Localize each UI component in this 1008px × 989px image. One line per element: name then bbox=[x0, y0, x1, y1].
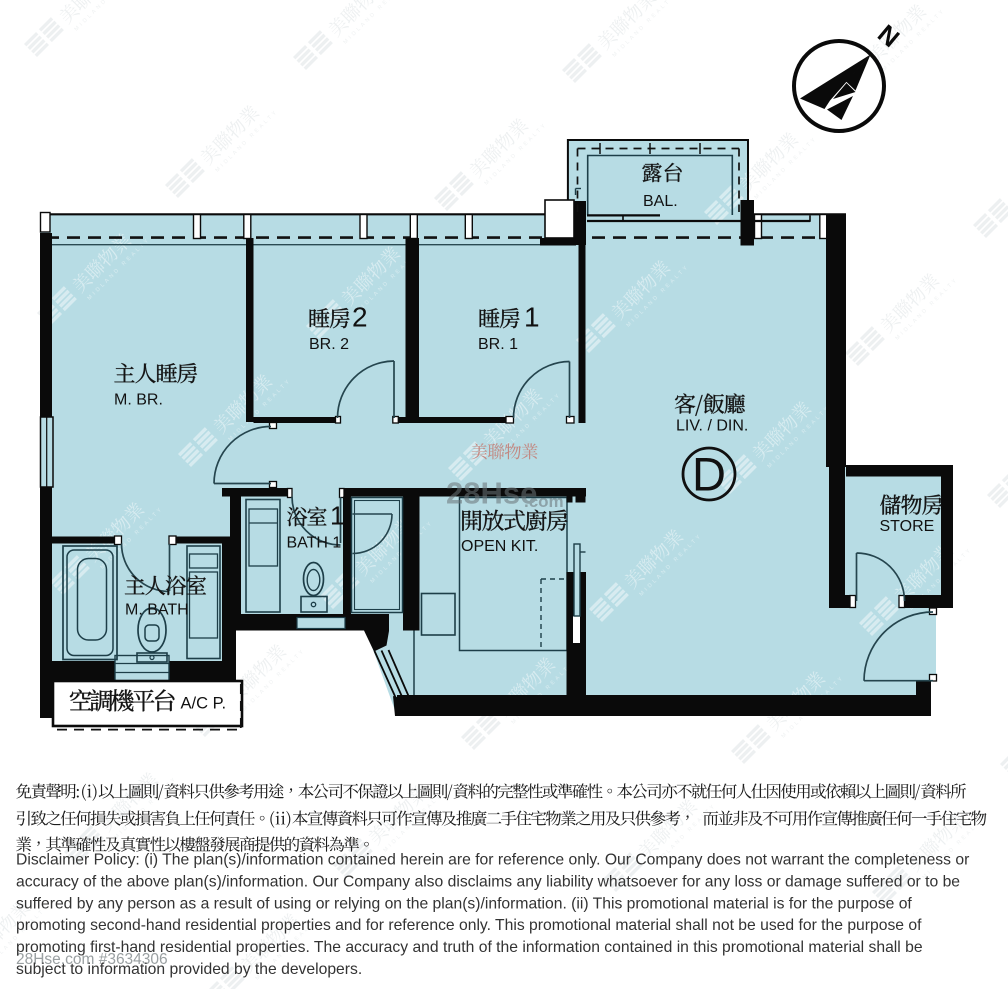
svg-text:M. BATH: M. BATH bbox=[125, 602, 189, 619]
svg-text:1: 1 bbox=[524, 302, 540, 333]
svg-text:BAL.: BAL. bbox=[643, 193, 678, 210]
svg-text:BATH 1: BATH 1 bbox=[287, 535, 342, 552]
svg-text:2: 2 bbox=[352, 302, 368, 333]
svg-text:promoting first-hand residenti: promoting first-hand residential propert… bbox=[16, 939, 923, 956]
svg-text:.com: .com bbox=[524, 492, 564, 511]
svg-text:Disclaimer Policy: (i) The pla: Disclaimer Policy: (i) The plan(s)/infor… bbox=[16, 852, 969, 869]
svg-text:STORE: STORE bbox=[880, 518, 935, 535]
svg-text:M. BR.: M. BR. bbox=[114, 392, 163, 409]
svg-text:LIV. / DIN.: LIV. / DIN. bbox=[676, 418, 748, 435]
svg-text:D: D bbox=[692, 448, 726, 501]
svg-text:BR. 1: BR. 1 bbox=[478, 336, 518, 353]
svg-text:MIDLAND REALTY: MIDLAND REALTY bbox=[73, 0, 138, 33]
svg-text:MIDLAND REALTY: MIDLAND REALTY bbox=[73, 0, 138, 33]
svg-text:promoting second-hand resident: promoting second-hand residential proper… bbox=[16, 917, 922, 934]
svg-text:accuracy of the above plan(s)/: accuracy of the above plan(s)/informatio… bbox=[16, 873, 960, 890]
svg-text:subject to information provide: subject to information provided by the d… bbox=[16, 961, 362, 978]
svg-text:1: 1 bbox=[330, 501, 344, 531]
svg-text:OPEN KIT.: OPEN KIT. bbox=[461, 538, 538, 555]
svg-text:BR. 2: BR. 2 bbox=[309, 336, 349, 353]
svg-text:suffered by any person as a re: suffered by any person as a result of us… bbox=[16, 895, 912, 912]
svg-text:A/C P.: A/C P. bbox=[181, 695, 227, 713]
